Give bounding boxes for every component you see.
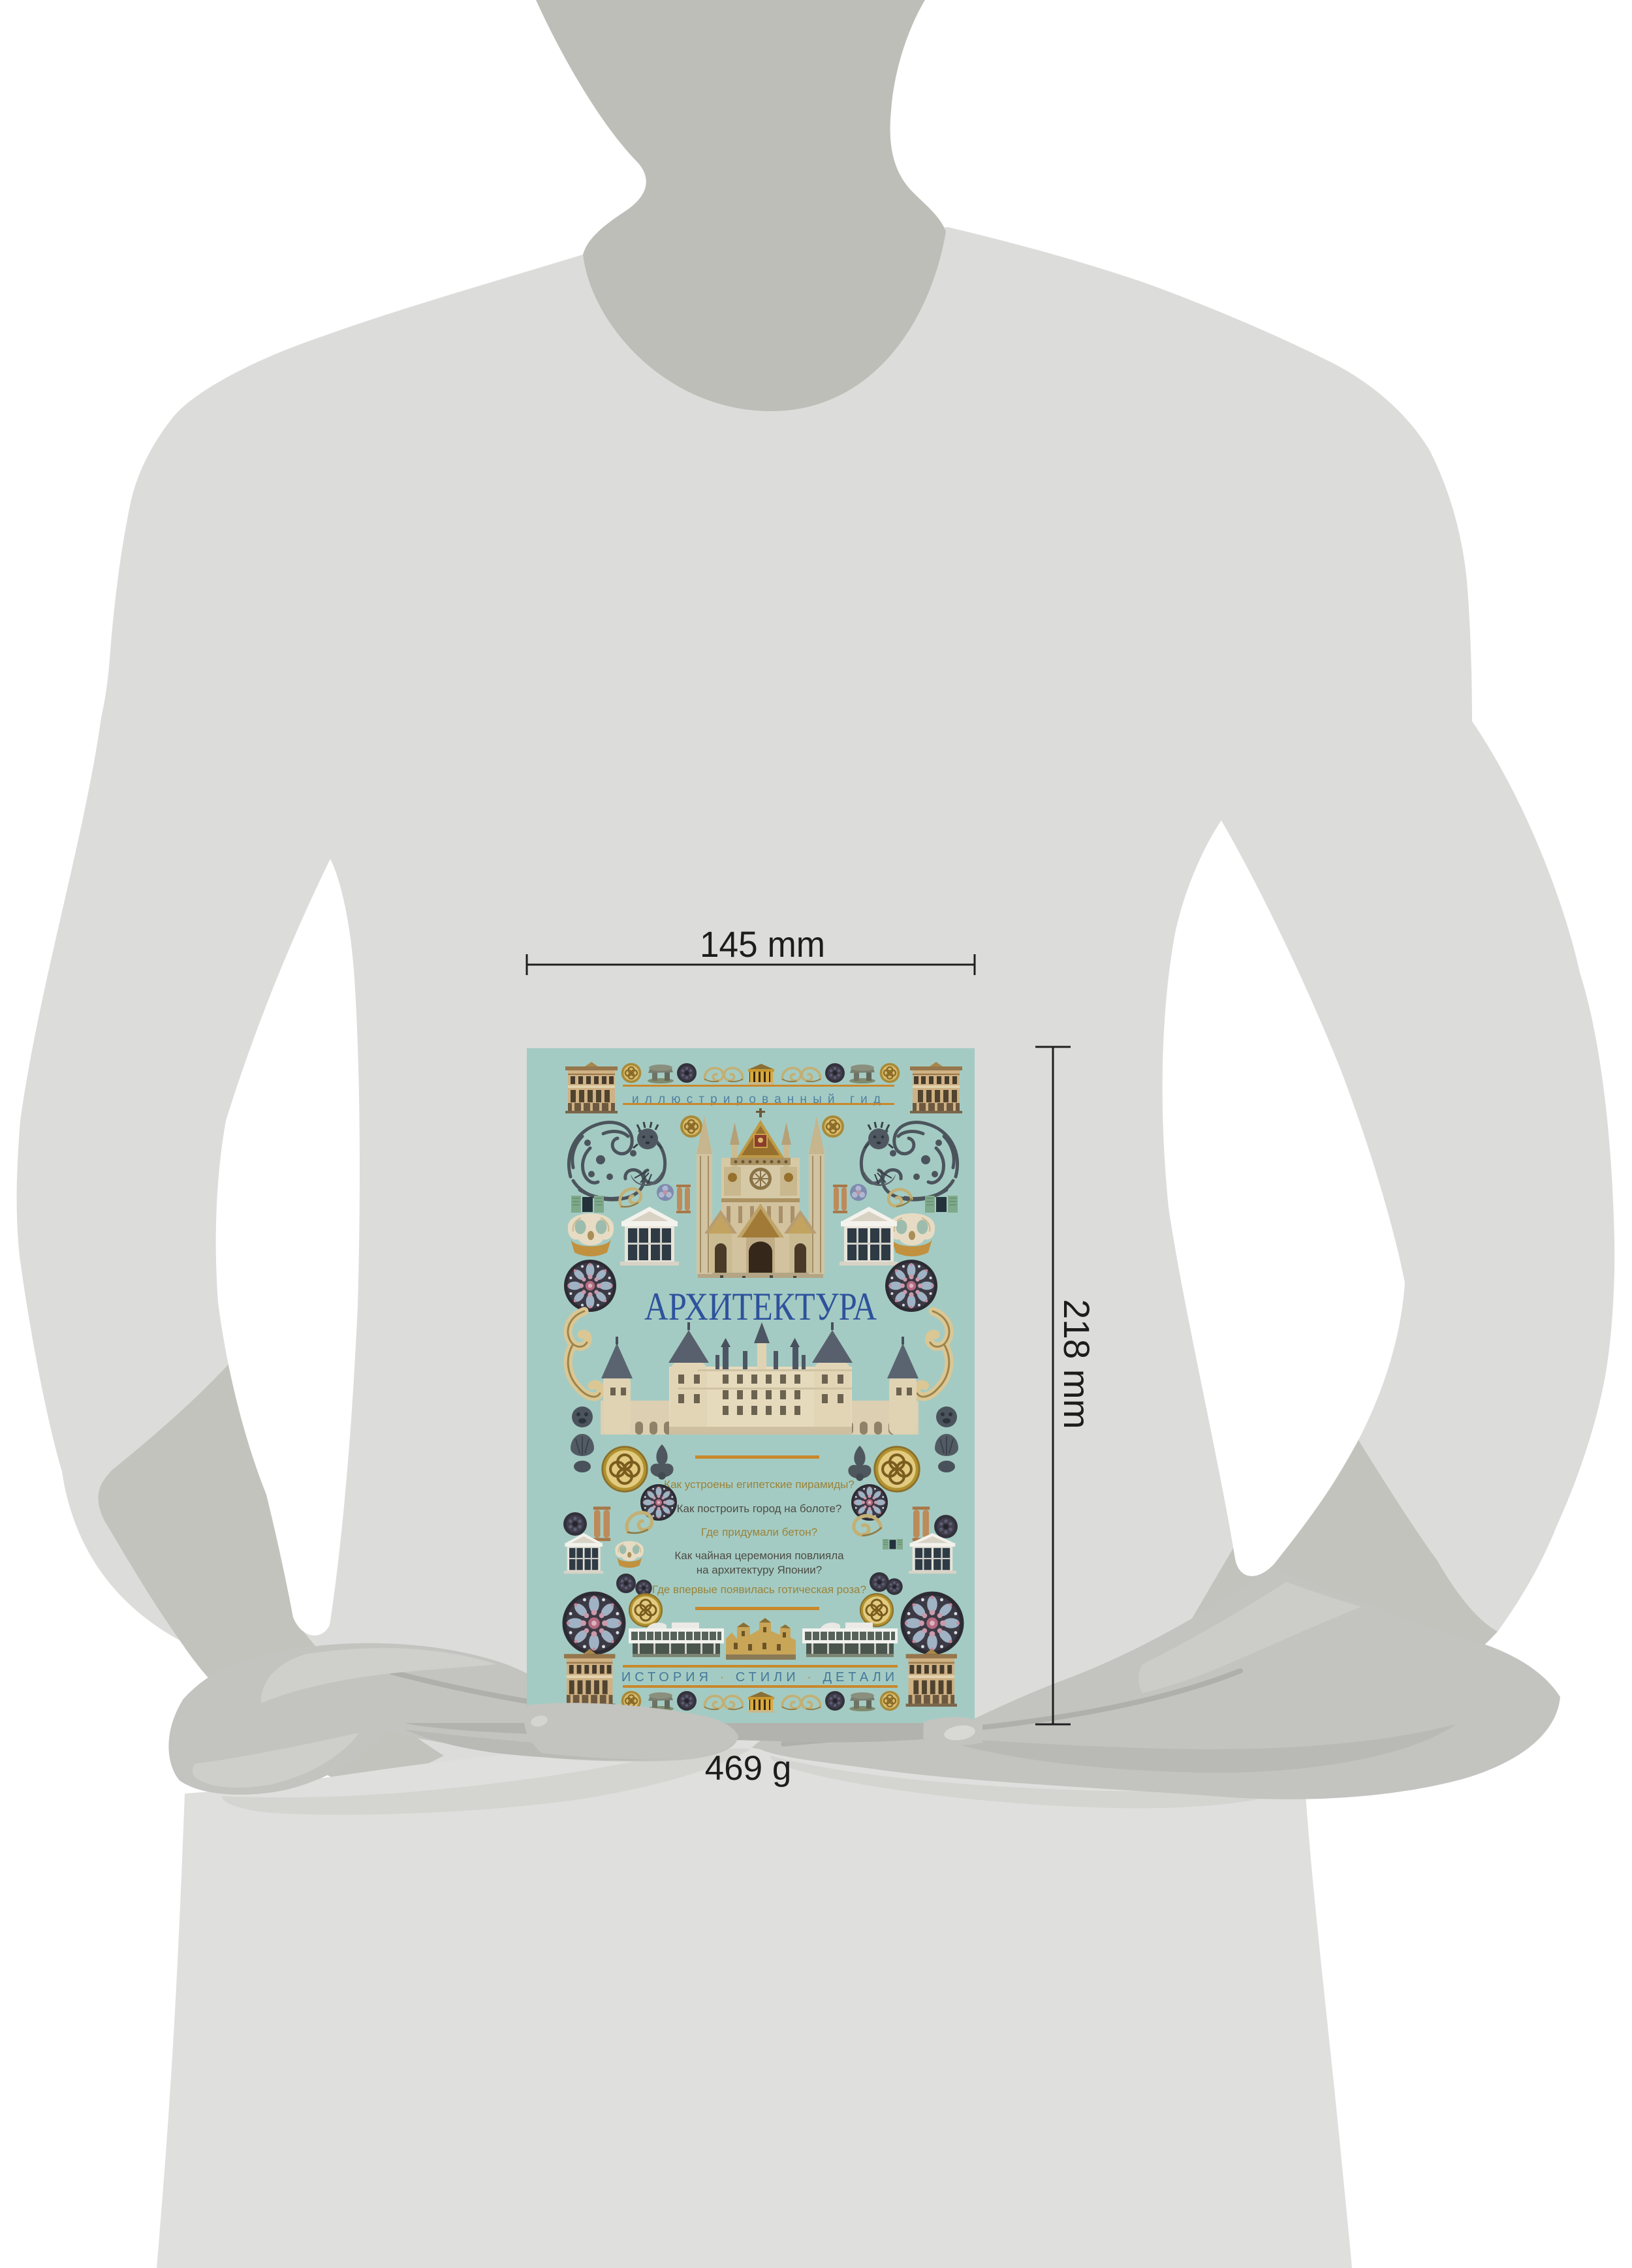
svg-text:Как построить город на болоте?: Как построить город на болоте? xyxy=(677,1502,842,1515)
svg-text:Где придумали бетон?: Где придумали бетон? xyxy=(701,1526,817,1538)
svg-text:ИСТОРИЯ · СТИЛИ · ДЕТАЛИ: ИСТОРИЯ · СТИЛИ · ДЕТАЛИ xyxy=(621,1670,898,1685)
svg-text:Где впервые появилась готическ: Где впервые появилась готическая роза? xyxy=(652,1583,866,1596)
svg-text:Как чайная церемония повлияла: Как чайная церемония повлияла xyxy=(674,1549,844,1562)
svg-text:469 g: 469 g xyxy=(705,1749,792,1788)
svg-text:145 mm: 145 mm xyxy=(700,924,825,965)
svg-text:Как устроены египетские пирами: Как устроены египетские пирамиды? xyxy=(664,1478,855,1491)
svg-text:АРХИТЕКТУРА: АРХИТЕКТУРА xyxy=(644,1285,877,1328)
svg-text:на архитектуру Японии?: на архитектуру Японии? xyxy=(697,1564,823,1576)
svg-text:218 mm: 218 mm xyxy=(1056,1299,1097,1429)
